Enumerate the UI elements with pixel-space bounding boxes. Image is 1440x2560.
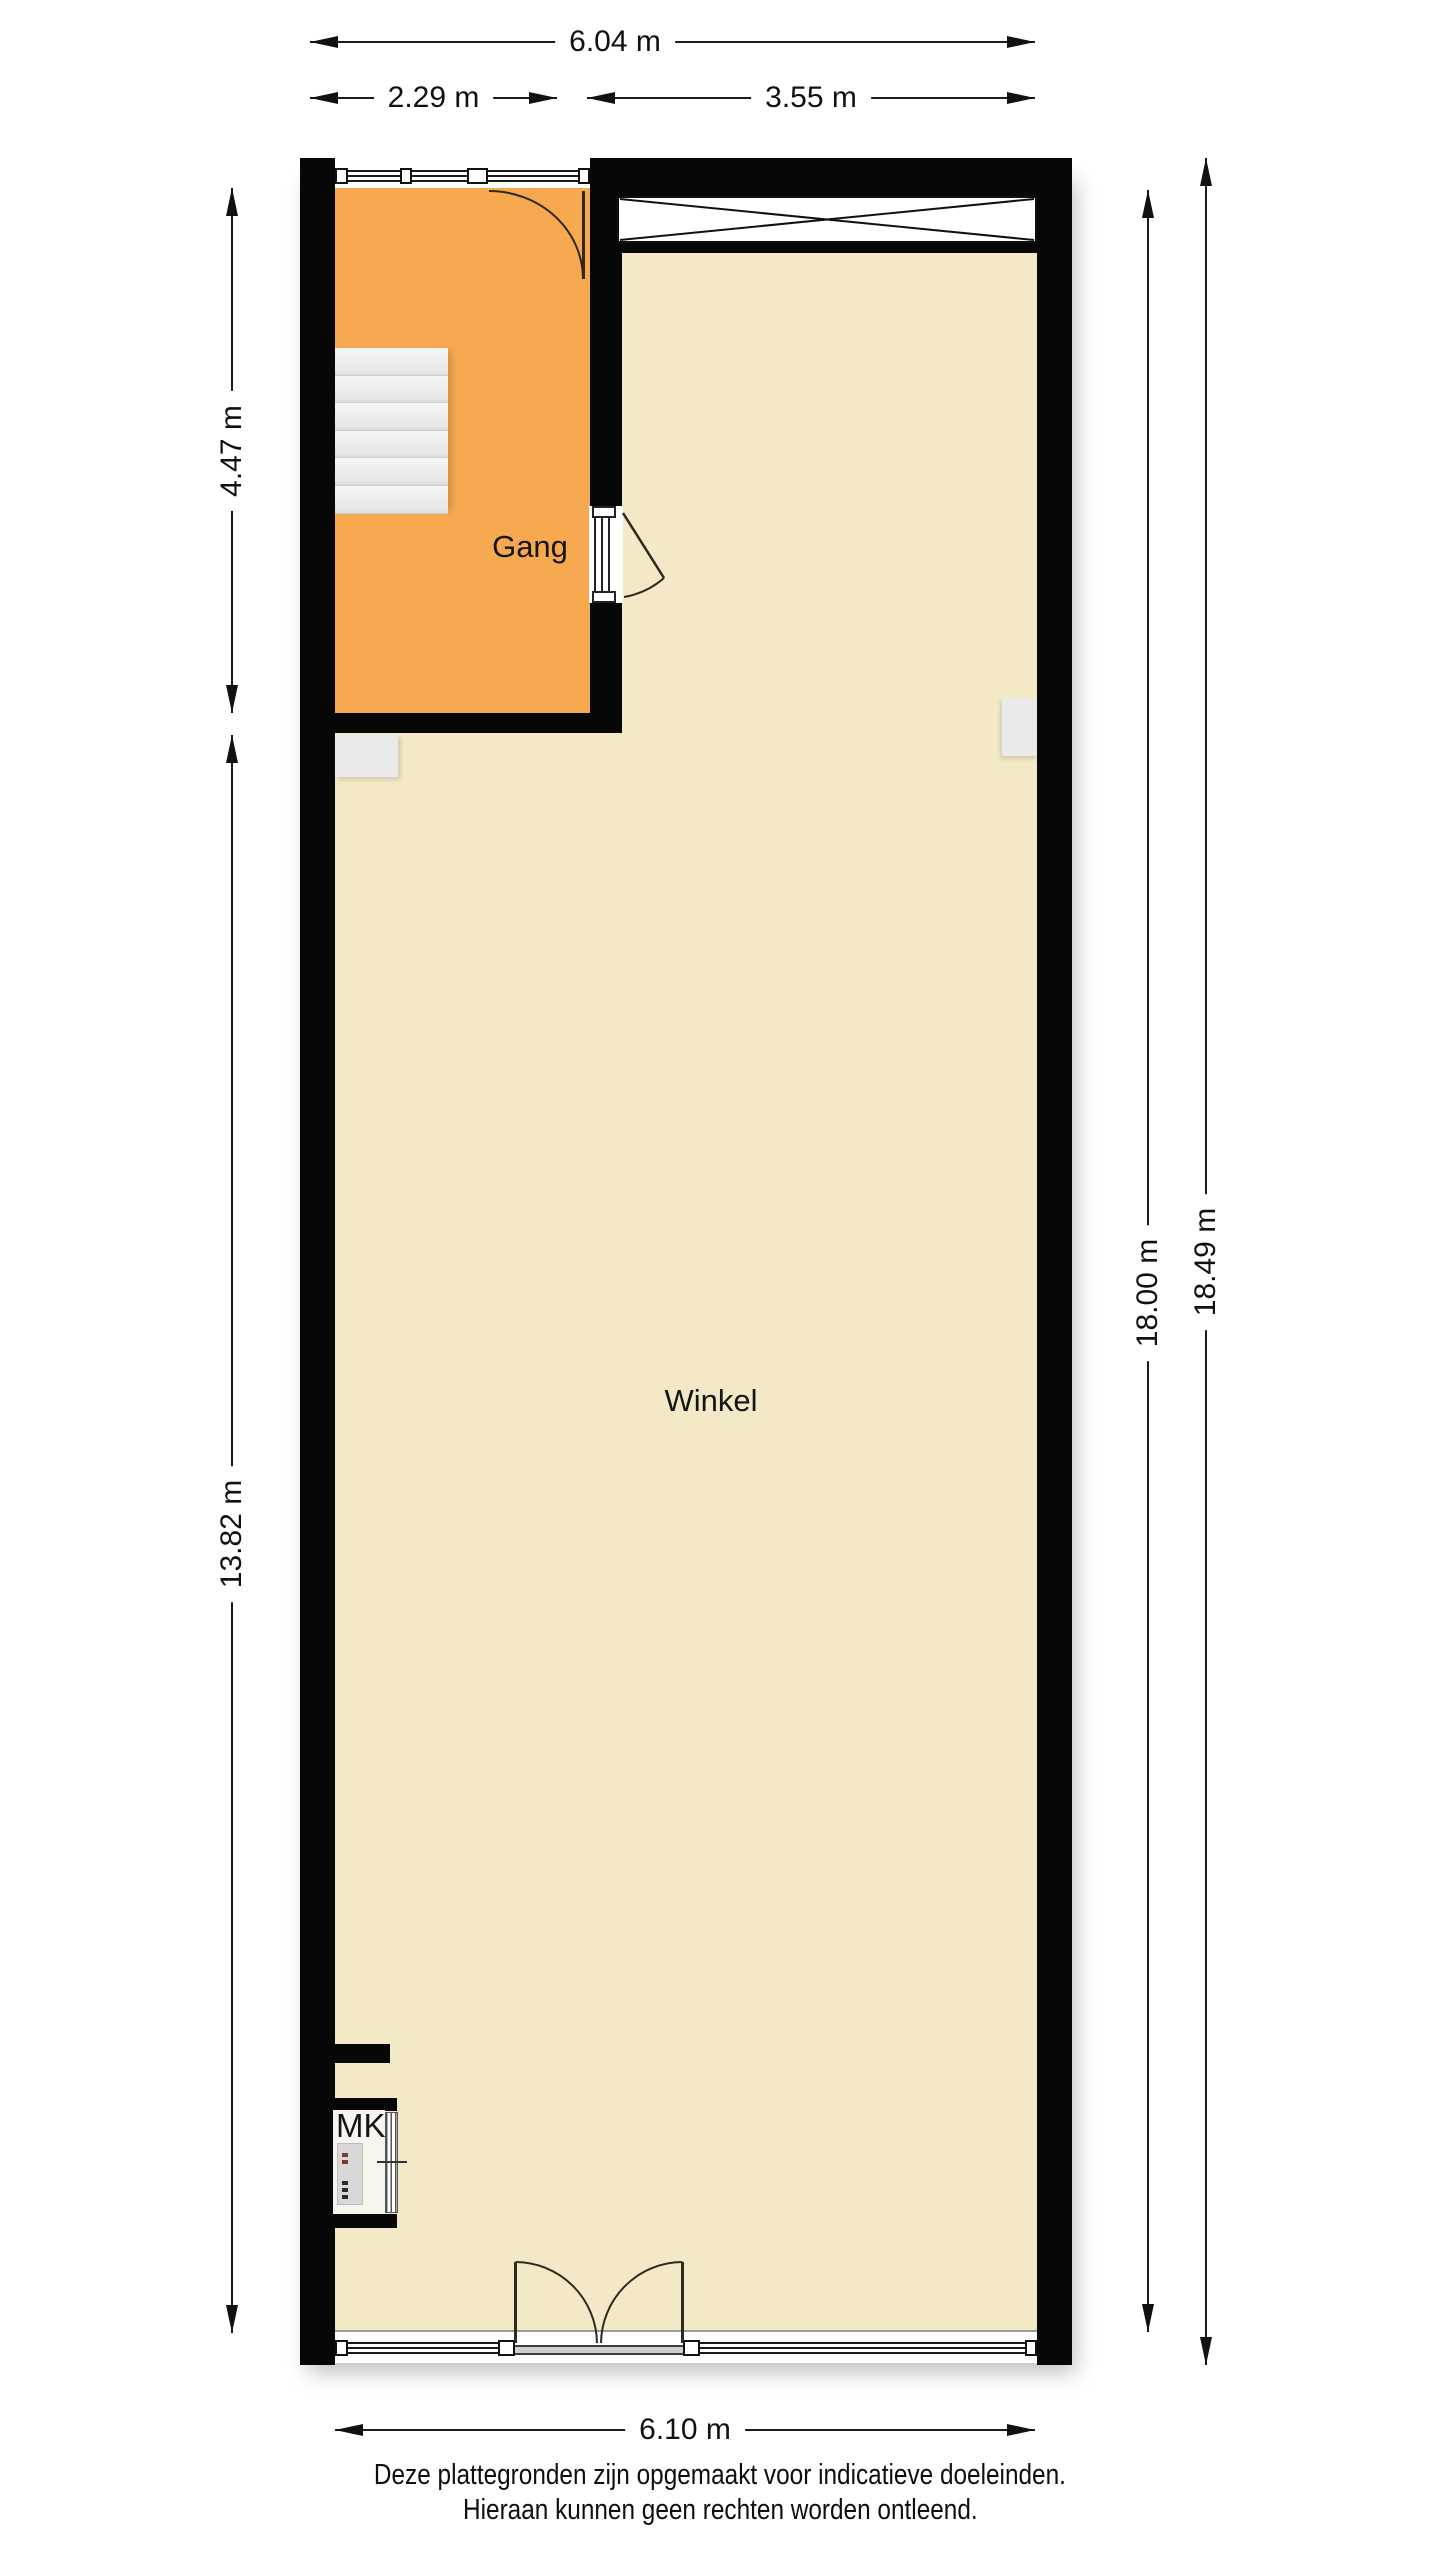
dimension-label: 3.55 m xyxy=(751,79,871,117)
meter-panel xyxy=(337,2143,363,2205)
dimension-label: 2.29 m xyxy=(374,79,494,117)
window-band-top xyxy=(335,158,590,188)
wall-top xyxy=(590,158,1072,196)
arrow-up-icon xyxy=(1200,158,1212,186)
stair-step xyxy=(335,348,448,376)
arrow-left-icon xyxy=(310,92,338,104)
meter-indicator xyxy=(342,2188,348,2192)
arrow-down-icon xyxy=(226,685,238,713)
window-mullion xyxy=(578,168,590,184)
arrow-up-icon xyxy=(1142,190,1154,218)
arrow-up-icon xyxy=(226,188,238,216)
dimension-label: 18.00 m xyxy=(1129,1225,1167,1361)
dimension-label: 18.49 m xyxy=(1187,1193,1225,1329)
dimension-label: 6.10 m xyxy=(625,2411,745,2449)
dimension-label: 6.04 m xyxy=(555,23,675,61)
page: { "plan": { "title": "floor plan (shop w… xyxy=(0,0,1440,2560)
vide-crossed-box xyxy=(617,196,1037,243)
meter-indicator xyxy=(342,2181,348,2185)
wall-left xyxy=(300,158,335,2365)
arrow-right-icon xyxy=(529,92,557,104)
entry-threshold xyxy=(515,2345,683,2355)
dimension-top-right: 3.55 m xyxy=(587,86,1035,110)
dimension-top-total: 6.04 m xyxy=(310,30,1035,54)
stair-step xyxy=(335,486,448,514)
meter-indicator xyxy=(342,2160,348,2164)
arrow-right-icon xyxy=(1007,2424,1035,2436)
window-mullion xyxy=(1025,2340,1037,2356)
window-glazing xyxy=(488,170,578,182)
window-mullion xyxy=(400,168,412,184)
wall-gang-bottom xyxy=(335,713,622,733)
door-frame xyxy=(592,506,616,518)
wall-under-vide xyxy=(617,243,1037,253)
meter-indicator xyxy=(342,2153,348,2157)
arrow-right-icon xyxy=(1007,92,1035,104)
arrow-down-icon xyxy=(226,2305,238,2333)
window-mullion xyxy=(467,168,488,184)
arrow-left-icon xyxy=(335,2424,363,2436)
window-mullion xyxy=(335,168,348,184)
window-glazing xyxy=(698,2342,1025,2354)
right-wall-duct-fixture xyxy=(1002,698,1038,756)
dimension-right-inner: 18.00 m xyxy=(1136,190,1160,2332)
window-glazing xyxy=(348,2342,498,2354)
wall-stub-mk xyxy=(330,2044,390,2063)
arrow-down-icon xyxy=(1142,2304,1154,2332)
door-panel xyxy=(594,518,612,591)
arrow-right-icon xyxy=(1007,36,1035,48)
room-label-mk: MK xyxy=(336,2107,386,2145)
door-gang-winkel-opening xyxy=(589,506,623,603)
dimension-top-left: 2.29 m xyxy=(310,86,557,110)
wall-cabinet-fixture xyxy=(335,734,398,777)
door-post xyxy=(683,2340,700,2356)
staircase xyxy=(335,348,448,508)
dimension-left-upper: 4.47 m xyxy=(220,188,244,713)
footer-disclaimer: Deze plattegronden zijn opgemaakt voor i… xyxy=(0,2458,1440,2528)
dimension-right-outer: 18.49 m xyxy=(1194,158,1218,2365)
window-glazing xyxy=(348,170,400,182)
wall-mk-bottom xyxy=(330,2214,397,2228)
room-label-winkel: Winkel xyxy=(664,1383,757,1419)
arrow-down-icon xyxy=(1200,2337,1212,2365)
storefront-band-bottom xyxy=(335,2330,1037,2362)
footer-line-1: Deze plattegronden zijn opgemaakt voor i… xyxy=(374,2458,1066,2493)
mk-door-tick xyxy=(377,2161,407,2163)
window-mullion xyxy=(335,2340,348,2356)
dimension-left-lower: 13.82 m xyxy=(220,735,244,2333)
dimension-label: 4.47 m xyxy=(213,391,251,511)
footer-line-2: Hieraan kunnen geen rechten worden ontle… xyxy=(463,2493,978,2528)
arrow-up-icon xyxy=(226,735,238,763)
door-post xyxy=(498,2340,515,2356)
wall-right xyxy=(1037,158,1072,2365)
dimension-bottom: 6.10 m xyxy=(335,2418,1035,2442)
stair-step xyxy=(335,458,448,486)
meter-indicator xyxy=(342,2195,348,2199)
stair-step xyxy=(335,431,448,459)
arrow-left-icon xyxy=(587,92,615,104)
stair-step xyxy=(335,376,448,404)
room-label-gang: Gang xyxy=(492,529,568,565)
door-frame xyxy=(592,591,616,603)
dimension-label: 13.82 m xyxy=(213,1466,251,1602)
arrow-left-icon xyxy=(310,36,338,48)
window-glazing xyxy=(412,170,467,182)
stair-step xyxy=(335,403,448,431)
